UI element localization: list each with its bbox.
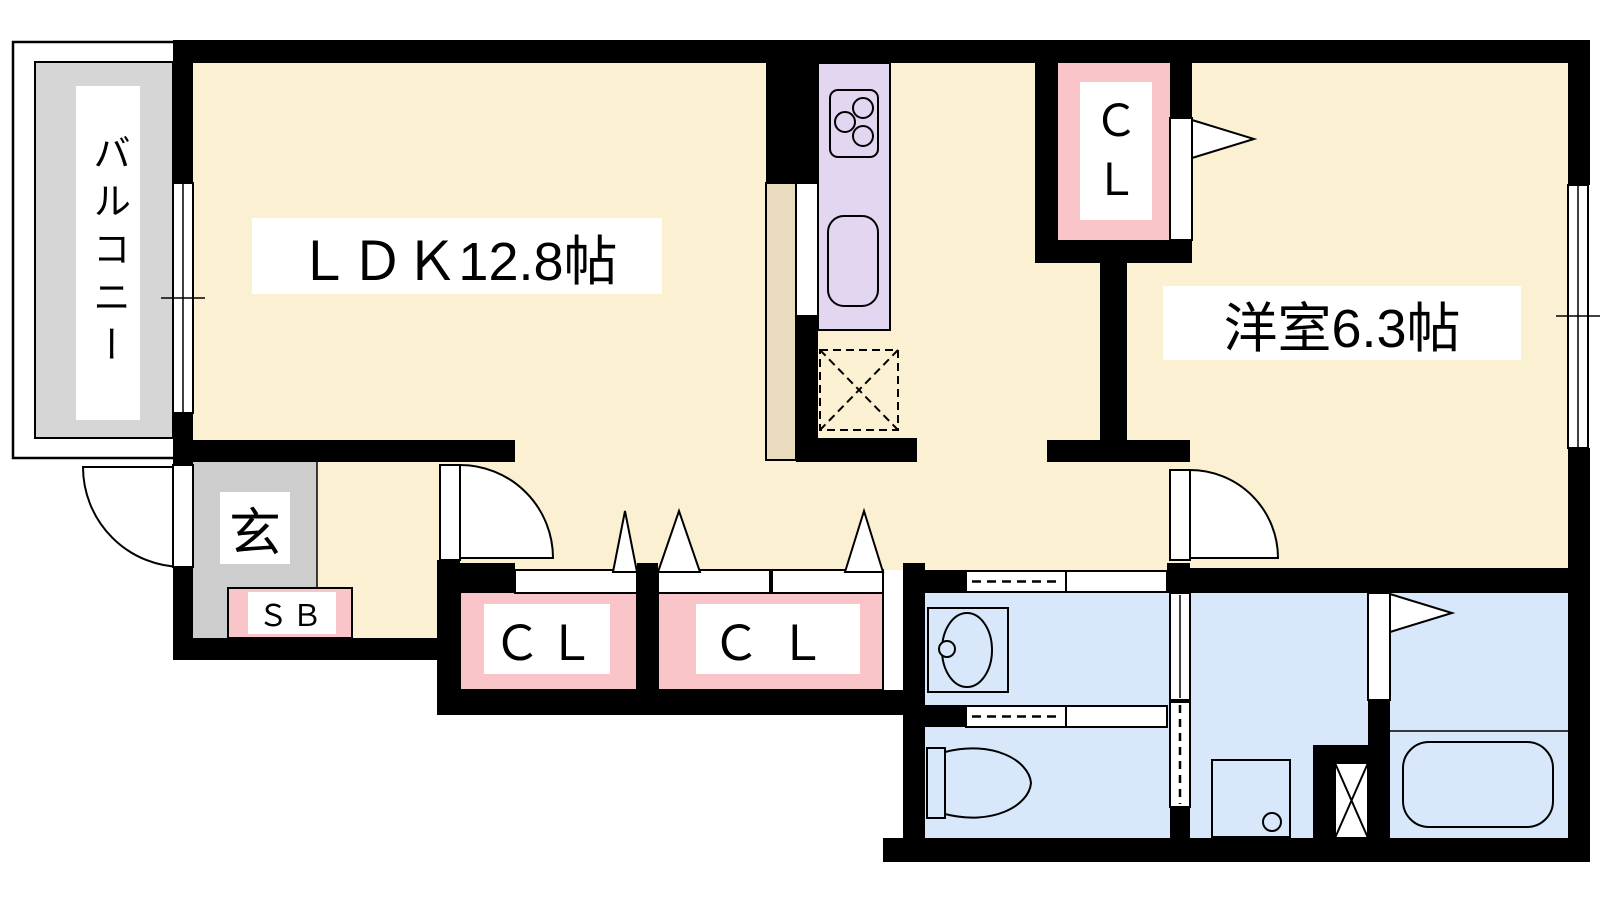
wall <box>925 705 966 727</box>
bathroom-door <box>1368 593 1390 700</box>
closet-top-door <box>1170 118 1192 240</box>
ldk-label: ＬＤＫ12.8帖 <box>252 218 662 294</box>
wall <box>437 563 515 593</box>
closet-right-door-panel <box>658 570 770 593</box>
washbasin-faucet-icon <box>939 641 955 657</box>
wall <box>173 638 460 660</box>
entrance-label: 玄 <box>220 492 290 564</box>
closet-right-door-panel <box>772 570 883 593</box>
western-room-label: 洋室6.3帖 <box>1163 286 1521 360</box>
shoe-box-label: ＳＢ <box>248 592 336 634</box>
entrance-door-swing <box>83 467 183 567</box>
wall <box>1568 448 1590 862</box>
washroom-sliding-door-panel <box>1066 571 1167 592</box>
wall <box>1035 63 1058 240</box>
kitchen-counter <box>766 183 796 460</box>
wall <box>796 316 818 440</box>
wall <box>883 838 1590 862</box>
wall <box>1047 440 1190 462</box>
closet-top-label-line1: Ｃ <box>1094 92 1138 151</box>
wall <box>1100 263 1127 440</box>
closet-right-label: ＣＬ <box>696 604 860 674</box>
western-room-door-leaf <box>1170 470 1190 560</box>
wall <box>925 570 966 593</box>
closet-top-label: Ｃ Ｌ <box>1080 82 1152 220</box>
wall <box>1170 63 1192 118</box>
bathroom-floor <box>1390 593 1568 838</box>
wall <box>1568 63 1590 185</box>
wall <box>766 63 818 183</box>
wall <box>1167 563 1190 593</box>
entrance-door-leaf <box>173 465 193 567</box>
closet-top-label-line2: Ｌ <box>1094 151 1138 210</box>
closet-left-door <box>515 570 637 593</box>
kitchen-pass-through <box>796 183 818 316</box>
wall <box>1170 807 1190 838</box>
wall <box>173 440 515 462</box>
wall <box>903 563 925 862</box>
floor-plan: バルコニー ＬＤＫ12.8帖 洋室6.3帖 玄 ＳＢ ＣＬ ＣＬ Ｃ Ｌ <box>0 0 1600 900</box>
ldk-door-leaf <box>440 465 460 560</box>
wall <box>1190 568 1590 593</box>
wall <box>637 563 658 690</box>
wall <box>1035 240 1192 263</box>
closet-left-label: ＣＬ <box>484 604 610 674</box>
wall <box>437 690 905 715</box>
wall <box>1368 700 1390 838</box>
wall <box>796 438 917 462</box>
balcony-label: バルコニー <box>76 86 140 420</box>
wall <box>173 40 1590 63</box>
wall <box>173 63 193 183</box>
toilet-sliding-door-panel <box>1066 706 1167 727</box>
floor-plan-drawing <box>0 0 1600 900</box>
